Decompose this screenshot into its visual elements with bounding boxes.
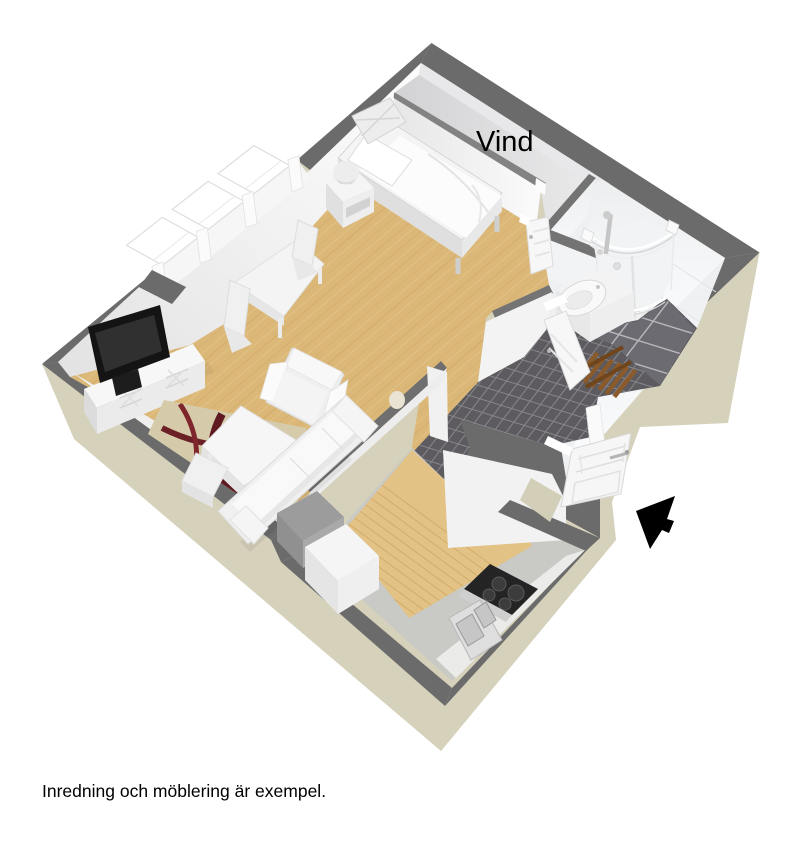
svg-text:Vind: Vind — [476, 126, 534, 158]
svg-text:Inredning och möblering är exe: Inredning och möblering är exempel. — [42, 781, 326, 801]
